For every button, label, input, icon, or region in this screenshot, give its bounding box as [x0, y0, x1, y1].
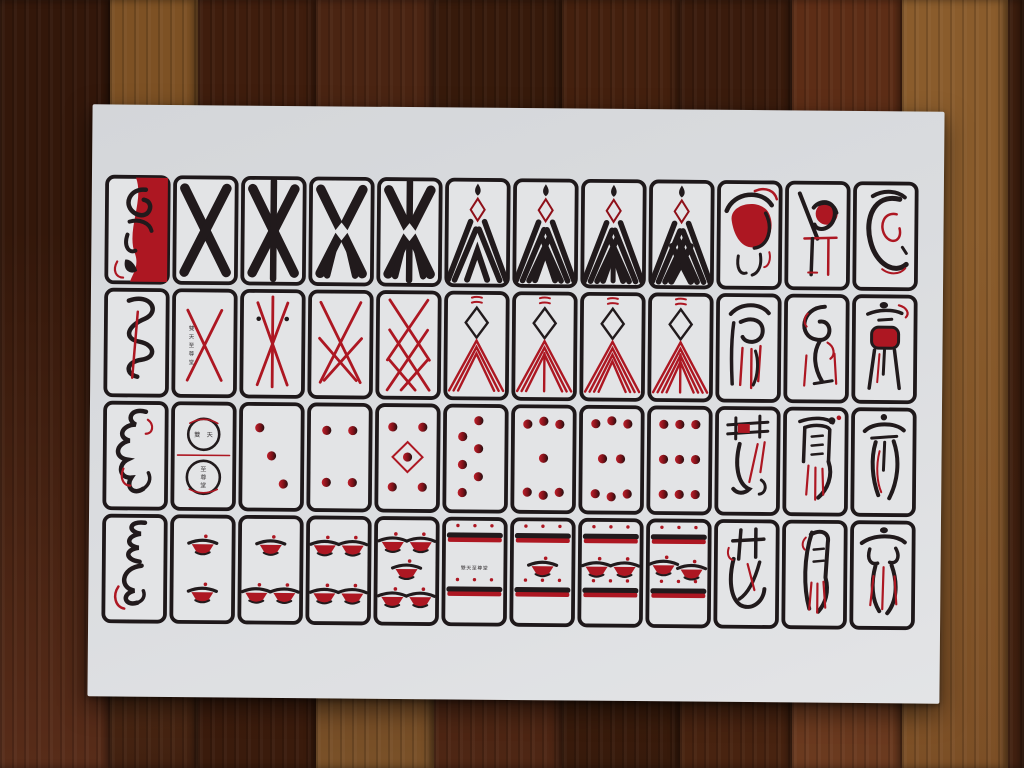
card-r2c8-red-peaks-8 — [579, 292, 646, 403]
card-r1c8-black-peaks-8 — [580, 179, 647, 290]
card-r1c12-coiled-glyph-figure — [852, 181, 919, 292]
card-r4c5-five-boats — [373, 516, 440, 627]
card-r3c7-seven-coins — [510, 404, 577, 515]
card-r1c5-crossed-tent-staff-5 — [376, 177, 443, 288]
card-r3c11-steed-glyph — [782, 406, 849, 517]
card-r4c2-two-boats — [169, 514, 236, 625]
card-r4c8-double-raft-two-boats — [577, 518, 644, 629]
card-r1c7-black-peaks-7 — [512, 178, 579, 289]
card-r4c3-three-boats — [237, 515, 304, 626]
svg-text:雙: 雙 — [194, 431, 200, 439]
card-r4c1-triple-ribbon-glyph — [101, 513, 168, 624]
card-r3c2-double-rings-maker-card: 雙天至尊堂 — [170, 401, 237, 512]
card-r1c3-cross-with-staff-3 — [240, 176, 307, 287]
card-r4c9-double-raft-two-boats-tilted — [645, 518, 712, 629]
photo-scene: 雙天至尊堂 雙天至尊堂 — [0, 0, 1024, 768]
card-r4c4-four-boats — [305, 515, 372, 626]
card-r3c10-noble-glyph — [714, 406, 781, 517]
card-r1c2-double-cross-2 — [172, 175, 239, 286]
card-r2c7-red-peaks-7 — [511, 291, 578, 402]
svg-text:天: 天 — [189, 334, 195, 341]
card-r1c1-ace-figure-red-robe — [104, 174, 171, 285]
card-r2c6-red-peaks-6 — [443, 290, 510, 401]
card-sheet-paper: 雙天至尊堂 雙天至尊堂 — [87, 104, 944, 703]
svg-text:至: 至 — [200, 466, 206, 473]
card-r2c9-red-peaks-9 — [647, 292, 714, 403]
card-r2c12-red-altar-table — [851, 294, 918, 405]
svg-text:雙天至尊堂: 雙天至尊堂 — [461, 565, 489, 572]
card-r4c7-double-raft-one-boat — [509, 517, 576, 628]
card-r3c1-ink-beast — [102, 400, 169, 511]
card-r2c4-red-lattice-4 — [307, 289, 374, 400]
card-r3c8-eight-coins — [578, 405, 645, 516]
card-r1c6-black-peaks-6 — [444, 177, 511, 288]
card-r3c12-emperor-glyph — [850, 407, 917, 518]
card-r3c4-four-coins — [306, 402, 373, 513]
card-r4c11-moon-glyph — [781, 519, 848, 630]
svg-text:尊: 尊 — [200, 473, 206, 481]
card-grid: 雙天至尊堂 雙天至尊堂 — [101, 174, 919, 630]
card-r1c10-red-cloak-figure — [716, 180, 783, 291]
card-r1c9-black-peaks-9 — [648, 179, 715, 290]
card-r3c5-five-coins — [374, 403, 441, 514]
svg-text:堂: 堂 — [189, 358, 195, 366]
card-r4c12-robed-emperor-glyph — [849, 520, 916, 631]
card-r2c5-red-lattice-5 — [375, 290, 442, 401]
svg-text:至: 至 — [189, 342, 195, 349]
card-r3c3-three-coins — [238, 402, 305, 513]
card-r2c2-red-cross-2-maker-mark: 雙天至尊堂 — [171, 288, 238, 399]
card-r1c11-perched-crane-figure — [784, 180, 851, 291]
svg-text:堂: 堂 — [200, 481, 206, 489]
card-r4c10-gate-glyph — [713, 519, 780, 630]
svg-text:雙: 雙 — [189, 324, 195, 332]
card-r3c6-six-coins — [442, 403, 509, 514]
card-r2c1-ink-spiral-shell — [103, 287, 170, 398]
svg-text:尊: 尊 — [189, 350, 195, 358]
card-r3c9-nine-coins — [646, 405, 713, 516]
card-r1c4-crossed-tent-4 — [308, 176, 375, 287]
card-r2c11-stork-figure — [783, 293, 850, 404]
card-r2c10-tasseled-robe-figure — [715, 293, 782, 404]
wood-plank-10 — [1008, 0, 1024, 768]
card-r2c3-red-cross-staff-3 — [239, 289, 306, 400]
svg-text:天: 天 — [207, 432, 213, 439]
card-r4c6-double-raft-maker-card: 雙天至尊堂 — [441, 516, 508, 627]
